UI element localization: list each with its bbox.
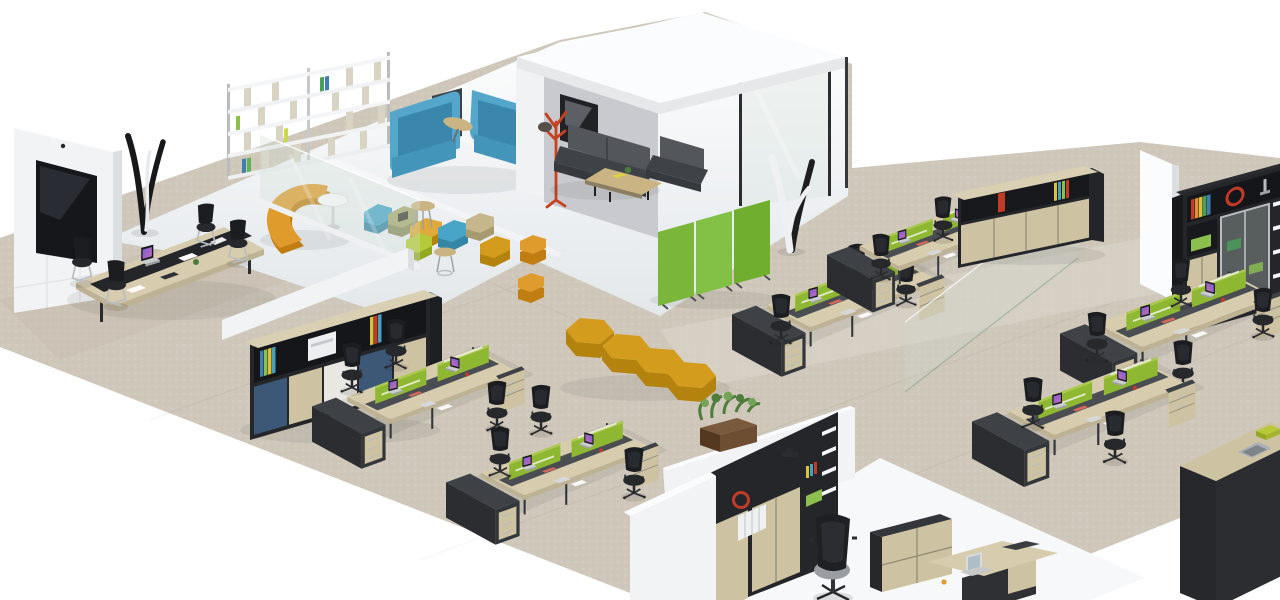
stool-hex-1 <box>520 235 546 265</box>
stool-hex-2 <box>518 273 544 303</box>
zigzag-module <box>668 362 716 402</box>
office-render: Isometric 3D rendering of an open-plan o… <box>0 0 1280 600</box>
camera-icon <box>61 144 65 148</box>
